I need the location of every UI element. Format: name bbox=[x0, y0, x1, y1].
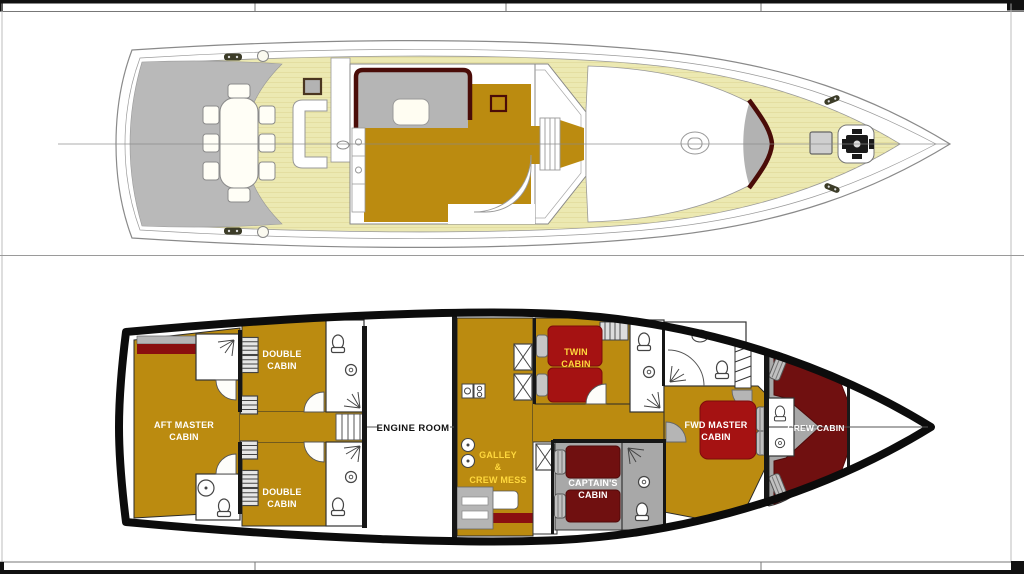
deck-plan-drawing: AFT MASTER CABIN DOUBLE CABIN DOUBLE CAB… bbox=[0, 0, 1024, 574]
dresser-icon bbox=[600, 322, 628, 340]
label-engine-room: ENGINE ROOM bbox=[376, 423, 449, 434]
galley-sink-icon bbox=[462, 384, 473, 398]
sink-icon bbox=[639, 477, 650, 488]
pillow-icon bbox=[555, 450, 566, 474]
galley-steps bbox=[457, 487, 493, 529]
engine-room-label: ENGINE ROOM bbox=[376, 423, 449, 434]
label-double-port-1: DOUBLE bbox=[262, 349, 301, 359]
cleat-icon bbox=[224, 54, 242, 61]
cleat-icon bbox=[224, 228, 242, 235]
toilet-icon bbox=[638, 333, 651, 351]
locker-icon bbox=[241, 441, 258, 459]
room-double-cabins bbox=[240, 320, 366, 526]
skylight-icon bbox=[491, 96, 506, 111]
room-galley-crew-mess bbox=[457, 318, 534, 536]
label-fwd-master-2: CABIN bbox=[701, 432, 731, 442]
berth-pillow-icon bbox=[242, 337, 258, 354]
label-captain-2: CABIN bbox=[578, 490, 608, 500]
label-aft-master-1: AFT MASTER bbox=[154, 420, 214, 430]
label-twin-2: CABIN bbox=[561, 359, 591, 369]
label-double-port-2: CABIN bbox=[267, 361, 297, 371]
aft-sofa bbox=[137, 344, 197, 354]
dining-chair bbox=[259, 134, 275, 152]
label-galley-3: CREW MESS bbox=[469, 475, 526, 485]
frame-top-bar bbox=[0, 0, 1024, 4]
latch-icon bbox=[337, 141, 349, 149]
berth-pillow-icon bbox=[242, 470, 258, 487]
label-aft-master-2: CABIN bbox=[169, 432, 199, 442]
lower-deck-plan: AFT MASTER CABIN DOUBLE CABIN DOUBLE CAB… bbox=[119, 313, 931, 542]
toilet-icon bbox=[218, 499, 231, 517]
dining-chair bbox=[228, 188, 250, 202]
berth-pillow-icon bbox=[242, 355, 258, 372]
label-double-stbd-2: CABIN bbox=[267, 499, 297, 509]
pillow-icon bbox=[555, 494, 566, 518]
deck-hatch-oval-icon bbox=[681, 132, 709, 154]
label-galley-1: GALLEY bbox=[479, 450, 517, 460]
dining-chair bbox=[203, 162, 219, 180]
room-twin-cabin bbox=[535, 318, 664, 412]
toilet-icon bbox=[636, 503, 649, 521]
sink-icon bbox=[644, 367, 655, 378]
deck-plan-sheet: AFT MASTER CABIN DOUBLE CABIN DOUBLE CAB… bbox=[0, 0, 1024, 574]
master-bed bbox=[700, 401, 756, 459]
berth-pillow-icon bbox=[242, 488, 258, 505]
bow-hatch-icon bbox=[810, 132, 832, 154]
deck-fill-icon bbox=[258, 51, 269, 62]
sink-icon bbox=[346, 472, 357, 483]
dining-chair bbox=[259, 106, 275, 124]
upper-deck-plan bbox=[58, 41, 950, 248]
dining-chair bbox=[203, 106, 219, 124]
pillow-icon bbox=[537, 335, 548, 357]
label-twin-1: TWIN bbox=[564, 347, 588, 357]
sink-icon bbox=[775, 438, 784, 447]
deck-hatch-icon bbox=[304, 79, 321, 94]
label-galley-2: & bbox=[495, 462, 502, 472]
salon-aft-walkway bbox=[448, 204, 535, 224]
locker-icon bbox=[241, 396, 258, 414]
dining-chair bbox=[259, 162, 275, 180]
label-double-stbd-1: DOUBLE bbox=[262, 487, 301, 497]
locker-x-icon bbox=[514, 374, 532, 400]
frame-bottom-right-mark bbox=[1011, 561, 1024, 574]
toilet-icon bbox=[716, 361, 729, 379]
label-captain-1: CAPTAIN'S bbox=[568, 478, 617, 488]
dining-chair bbox=[203, 134, 219, 152]
captain-bed bbox=[566, 446, 620, 478]
deck-fill-icon bbox=[258, 227, 269, 238]
label-fwd-master-1: FWD MASTER bbox=[685, 420, 748, 430]
salon-table bbox=[393, 99, 429, 125]
locker-x-icon bbox=[514, 344, 532, 370]
dining-chair bbox=[228, 84, 250, 98]
label-crew-cabin: CREW CABIN bbox=[787, 423, 844, 433]
dining-table bbox=[220, 98, 258, 188]
galley-counter-upper bbox=[352, 128, 365, 212]
pillow-icon bbox=[537, 374, 548, 396]
sink-icon bbox=[346, 365, 357, 376]
toilet-icon bbox=[332, 335, 345, 353]
frame-top-right-mark bbox=[1007, 0, 1024, 11]
frame-bottom-bar bbox=[0, 570, 1024, 574]
toilet-icon bbox=[332, 498, 345, 516]
toilet-icon bbox=[774, 406, 785, 421]
